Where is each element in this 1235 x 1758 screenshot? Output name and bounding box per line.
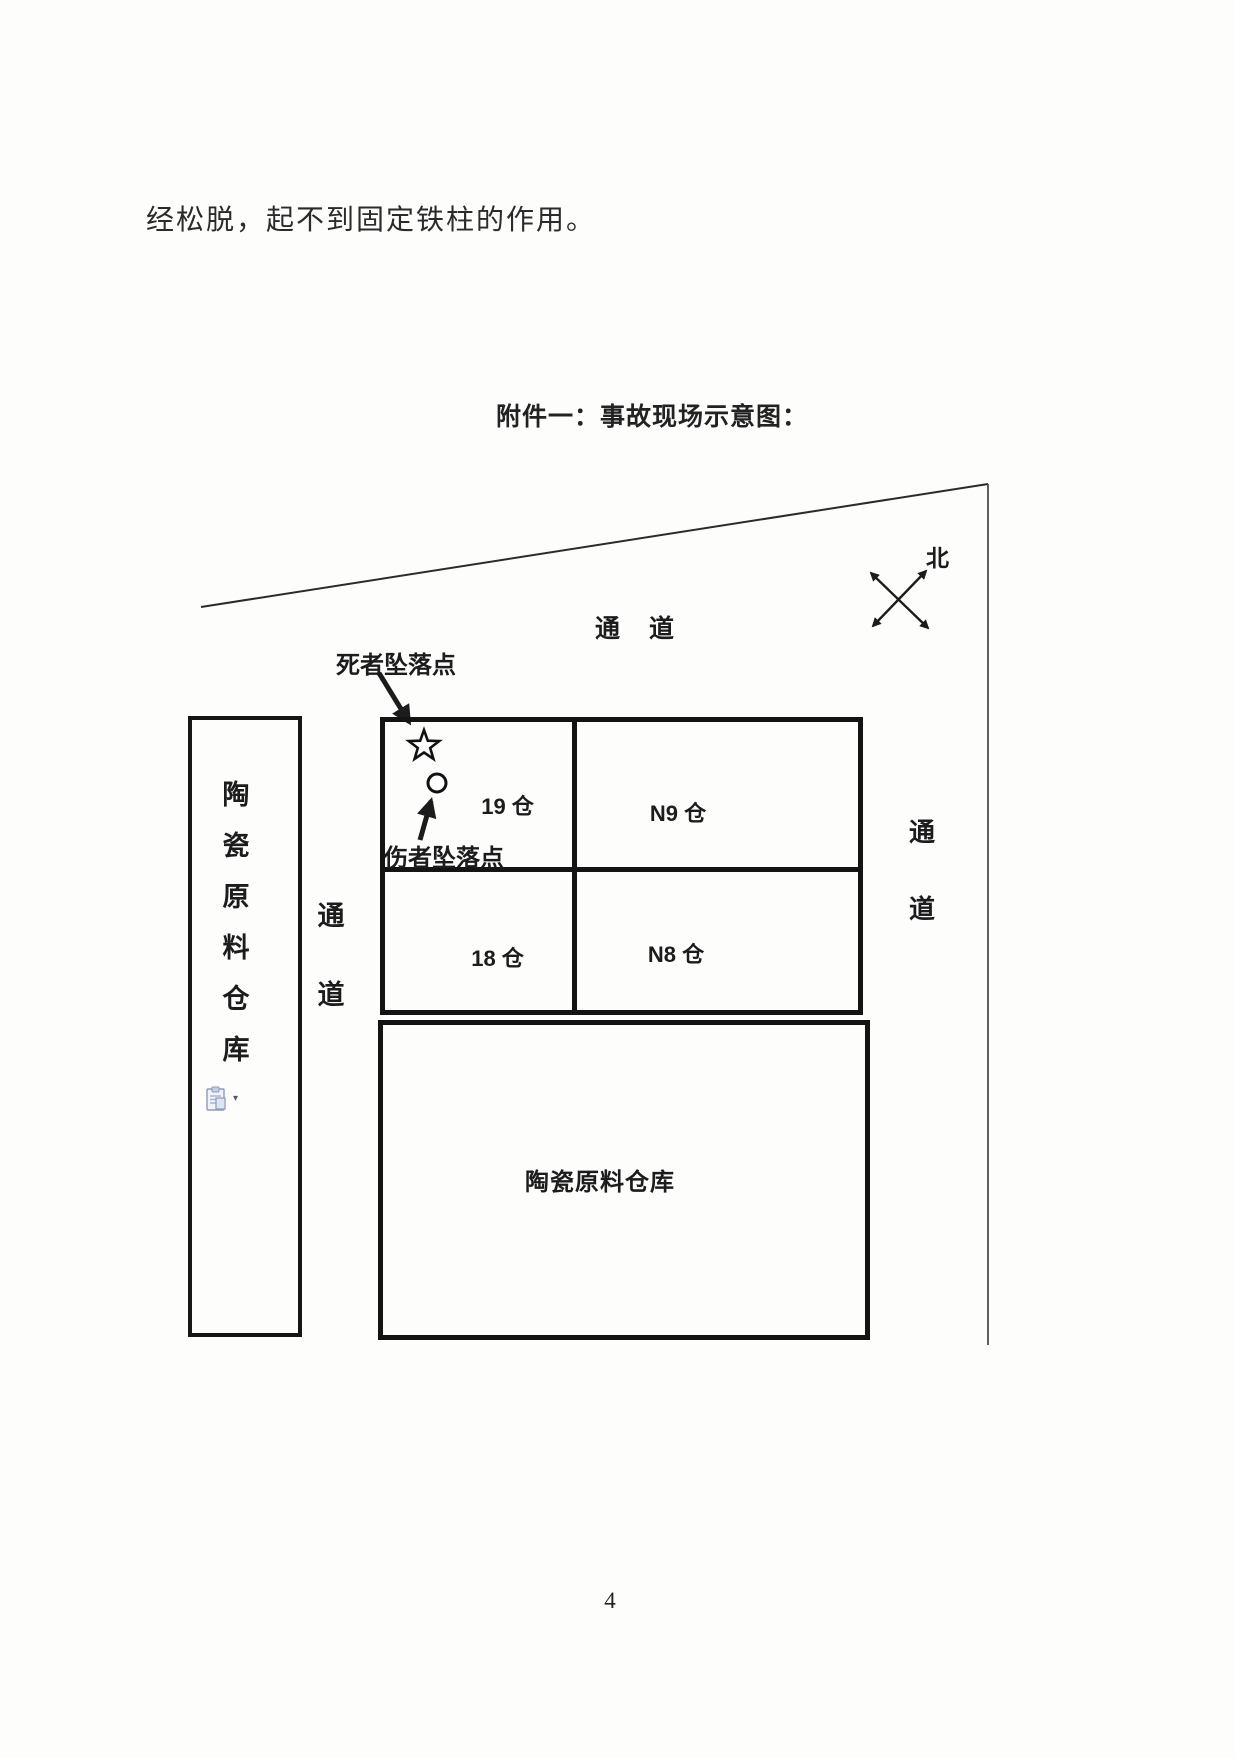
bottom-warehouse-label: 陶瓷原料仓库 (514, 1162, 686, 1197)
middle-aisle-label: 通 道 (315, 903, 347, 1009)
bin-18-label: 18 仓 (440, 941, 555, 973)
right-aisle-label: 通 道 (906, 819, 938, 923)
compass-icon (871, 571, 928, 628)
left-warehouse-char: 料 (223, 935, 250, 962)
north-label: 北 (926, 539, 949, 573)
body-text: 经松脱，起不到固定铁柱的作用。 (146, 198, 596, 238)
bin-n9-label: N9 仓 (618, 796, 738, 828)
boundary-line (201, 484, 988, 607)
left-warehouse-char: 仓 (223, 986, 250, 1013)
document-page: 经松脱，起不到固定铁柱的作用。 附件一：事故现场示意图： (0, 0, 1235, 1758)
top-aisle-label: 通 道 (595, 609, 676, 645)
middle-aisle-char: 道 (318, 982, 345, 1009)
middle-aisle-char: 通 (318, 903, 345, 930)
deceased-fall-point-label: 死者坠落点 (336, 645, 456, 680)
left-warehouse-char: 库 (223, 1037, 250, 1064)
paste-options-icon (203, 1086, 229, 1112)
dropdown-arrow-icon: ▾ (233, 1093, 238, 1104)
paste-options-button[interactable]: ▾ (203, 1086, 245, 1114)
building-vertical-divider (572, 722, 577, 1010)
deceased-arrow (379, 673, 409, 722)
left-warehouse-char: 瓷 (223, 833, 250, 860)
bin-n8-label: N8 仓 (616, 937, 736, 969)
left-warehouse-char: 陶 (223, 782, 250, 809)
page-number: 4 (570, 1588, 650, 1614)
left-warehouse-char: 原 (223, 884, 250, 911)
right-aisle-char: 通 (909, 819, 935, 846)
injured-fall-point-label: 伤者坠落点 (384, 838, 504, 873)
diagram-title: 附件一：事故现场示意图： (496, 397, 808, 433)
bin-19-label: 19 仓 (450, 789, 565, 821)
left-warehouse-label: 陶 瓷 原 料 仓 库 (220, 782, 252, 1064)
right-aisle-char: 道 (909, 896, 935, 923)
